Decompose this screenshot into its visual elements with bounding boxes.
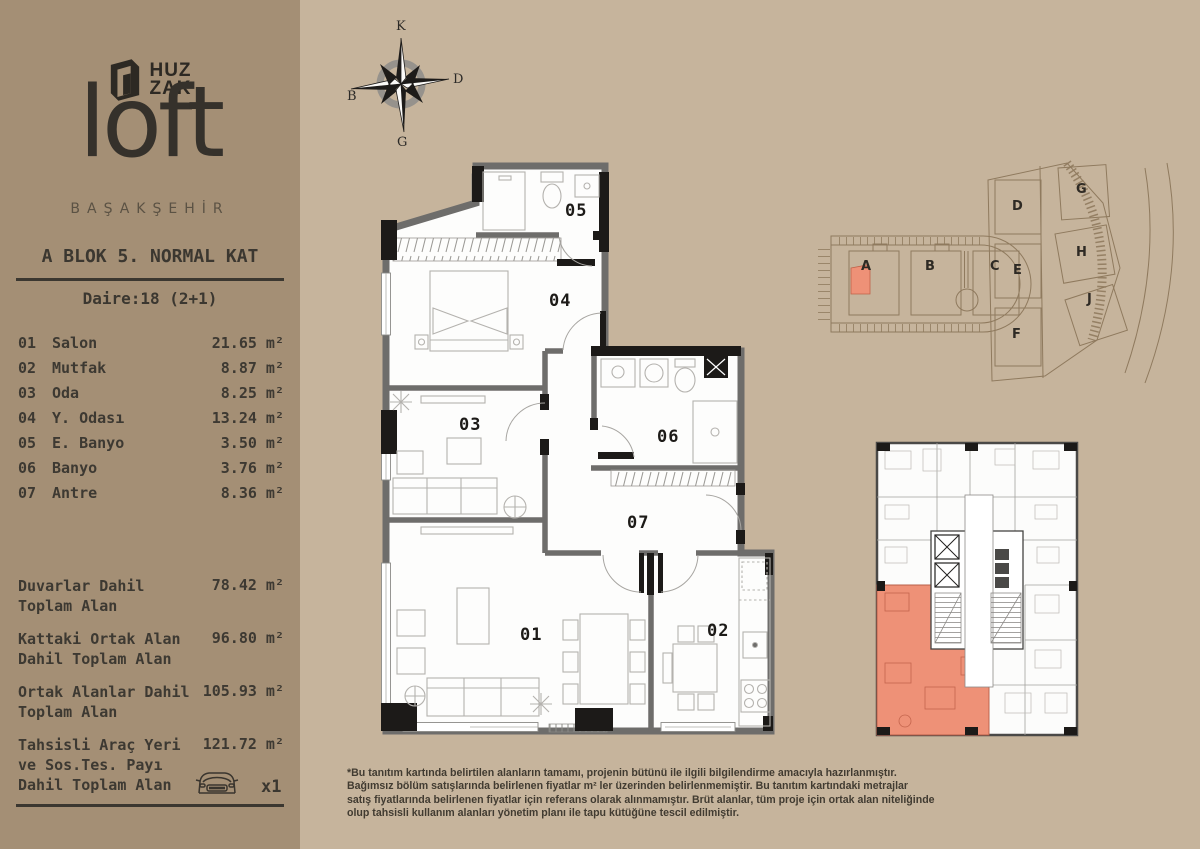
total-label: Tahsisli Araç Yeri ve Sos.Tes. Payı Dahi… (18, 735, 194, 795)
plan-room-label-06: 06 (657, 427, 679, 447)
room-row: 03 Oda 8.25 m² (18, 380, 284, 405)
parking-strip (818, 246, 830, 324)
plan-room-label-04: 04 (549, 291, 571, 311)
unit-title: Daire:18 (2+1) (0, 289, 300, 308)
room-name: Antre (52, 484, 221, 502)
room-area: 21.65 m² (212, 334, 284, 352)
brochure-page: { "colors": { "background": "#c6b49c", "… (0, 0, 1200, 849)
disclaimer-line: olup tahsisli kullanım alanları yönetim … (347, 807, 947, 820)
compass-south-label: G (397, 135, 407, 150)
total-item: Kattaki Ortak Alan Dahil Toplam Alan 96.… (18, 629, 284, 669)
site-block-d: D (1012, 199, 1023, 214)
total-item: Ortak Alanlar Dahil Toplam Alan 105.93 m… (18, 682, 284, 722)
site-block-g: G (1076, 182, 1087, 197)
parking-count: x1 (261, 777, 281, 797)
site-plan: A B C D E F G H J (815, 148, 1200, 398)
room-row: 01 Salon 21.65 m² (18, 330, 284, 355)
car-front-icon (195, 767, 239, 797)
parking-strip (835, 324, 981, 332)
room-name: Oda (52, 384, 221, 402)
parking-info: x1 (195, 767, 285, 797)
parking-strip (835, 237, 981, 245)
site-block-a: A (861, 259, 871, 274)
wardrobe-hall (611, 470, 735, 486)
wardrobe-bedroom (393, 238, 561, 261)
room-name: Salon (52, 334, 212, 352)
site-block-j: J (1086, 292, 1092, 307)
total-value: 78.42 m² (212, 576, 284, 594)
disclaimer-line: Bağımsız bölüm satışlarında belirlenen f… (347, 780, 947, 793)
compass-west-label: B (347, 89, 357, 104)
disclaimer-line: *Bu tanıtım kartında belirtilen alanları… (347, 767, 947, 780)
compass-star (351, 38, 449, 132)
room-no: 03 (18, 384, 52, 402)
room-row: 07 Antre 8.36 m² (18, 480, 284, 505)
site-roads (831, 163, 1173, 383)
total-label: Kattaki Ortak Alan Dahil Toplam Alan (18, 629, 194, 669)
key-plan (865, 435, 1095, 745)
room-row: 05 E. Banyo 3.50 m² (18, 430, 284, 455)
site-block-b: B (925, 259, 935, 274)
site-block-c: C (990, 259, 1000, 274)
disclaimer-line: satış fiyatlarında belirlenen fiyatlar i… (347, 794, 947, 807)
room-row: 06 Banyo 3.76 m² (18, 455, 284, 480)
room-no: 06 (18, 459, 52, 477)
shaft (704, 356, 728, 378)
total-value: 121.72 m² (203, 735, 284, 753)
total-item: Duvarlar Dahil Toplam Alan 78.42 m² (18, 576, 284, 616)
total-value: 105.93 m² (203, 682, 284, 700)
compass-north-label: K (396, 19, 406, 34)
room-name: Banyo (52, 459, 221, 477)
total-value: 96.80 m² (212, 629, 284, 647)
room-no: 07 (18, 484, 52, 502)
room-name: Y. Odası (52, 409, 212, 427)
plan-room-label-03: 03 (459, 415, 481, 435)
room-area: 13.24 m² (212, 409, 284, 427)
room-no: 01 (18, 334, 52, 352)
room-row: 04 Y. Odası 13.24 m² (18, 405, 284, 430)
room-list: 01 Salon 21.65 m² 02 Mutfak 8.87 m² 03 O… (18, 330, 284, 505)
room-area: 8.87 m² (221, 359, 284, 377)
disclaimer-text: *Bu tanıtım kartında belirtilen alanları… (347, 767, 947, 821)
plan-room-label-01: 01 (520, 625, 542, 645)
sidebar: HUZ ZAK loft BAŞAKŞEHİR A BLOK 5. NORMAL… (0, 0, 300, 849)
compass-east-label: D (453, 72, 463, 87)
compass-rose: K D G B (345, 12, 465, 152)
plan-room-label-07: 07 (627, 513, 649, 533)
site-block-e: E (1013, 263, 1022, 278)
room-no: 04 (18, 409, 52, 427)
plan-room-label-05: 05 (565, 201, 587, 221)
apartment-floor-plan: 01 02 03 04 05 06 07 (373, 158, 798, 753)
room-area: 8.36 m² (221, 484, 284, 502)
room-no: 02 (18, 359, 52, 377)
divider-line (16, 278, 284, 281)
room-area: 3.76 m² (221, 459, 284, 477)
site-block-f: F (1012, 327, 1021, 342)
room-no: 05 (18, 434, 52, 452)
room-area: 3.50 m² (221, 434, 284, 452)
room-name: Mutfak (52, 359, 221, 377)
total-label: Duvarlar Dahil Toplam Alan (18, 576, 194, 616)
room-row: 02 Mutfak 8.87 m² (18, 355, 284, 380)
block-title: A BLOK 5. NORMAL KAT (0, 246, 300, 267)
site-block-h: H (1076, 245, 1087, 260)
divider-line (16, 804, 284, 807)
room-area: 8.25 m² (221, 384, 284, 402)
logo-word: loft (0, 74, 300, 172)
room-name: E. Banyo (52, 434, 221, 452)
plan-room-label-02: 02 (707, 621, 729, 641)
brand-subtitle: BAŞAKŞEHİR (0, 201, 300, 217)
total-label: Ortak Alanlar Dahil Toplam Alan (18, 682, 194, 722)
